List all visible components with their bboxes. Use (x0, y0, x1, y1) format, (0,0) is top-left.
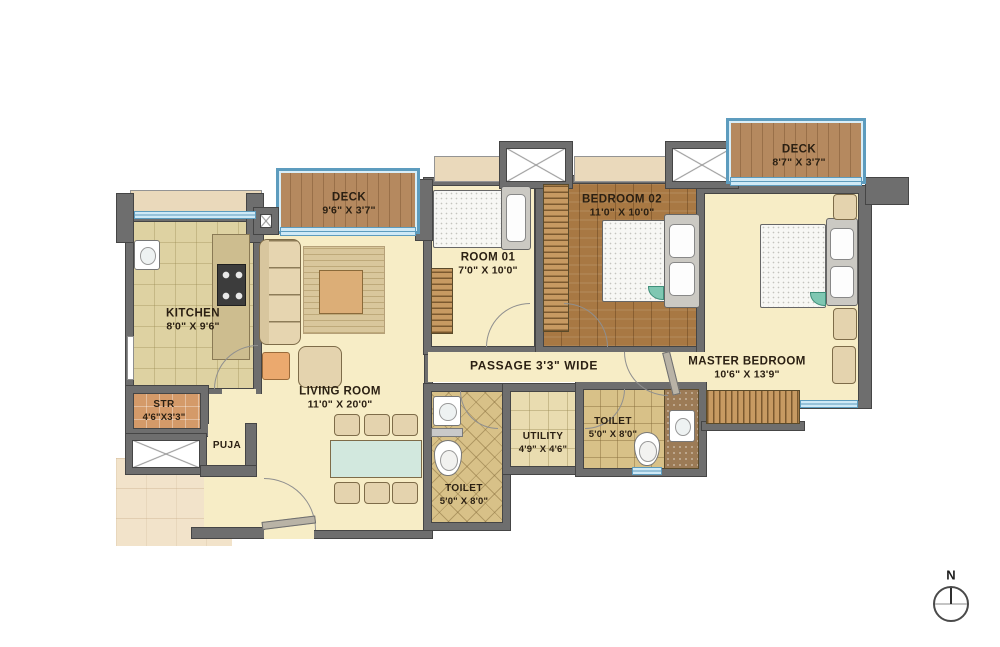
bed-room01 (433, 190, 503, 248)
floor-plan: KITCHEN8'0" X 9'6" DECK9'6" X 3'7" ROOM … (0, 0, 1000, 647)
dining-chair (392, 414, 418, 436)
sliding-door-deck-left (280, 227, 416, 236)
center-table (319, 270, 363, 314)
wall-stub-right (866, 178, 908, 204)
wc-bowl (440, 450, 459, 472)
armchair (298, 346, 342, 388)
nightstand (833, 194, 857, 220)
basin-bowl (675, 418, 691, 437)
dresser (832, 346, 856, 384)
wardrobe-master (706, 390, 800, 424)
nightstand (833, 308, 857, 340)
puja-wall-bottom (201, 466, 256, 476)
dining-table (330, 440, 422, 478)
compass-needle (950, 588, 952, 604)
duct-shaft-1 (500, 142, 572, 188)
duct-shaft-small (254, 208, 278, 234)
ledge-bedroom02 (574, 156, 668, 182)
washbasin (433, 396, 461, 426)
entry-opening (264, 530, 314, 539)
room-label-living: LIVING ROOM11'0" X 20'0" (299, 384, 381, 412)
pillow (669, 224, 695, 258)
cooktop-icon (217, 264, 246, 306)
kitchen-sink (134, 240, 160, 270)
sink-bowl (140, 247, 156, 265)
window-kitchen-top (134, 211, 256, 219)
room-label-puja: PUJA (213, 440, 241, 453)
window-master-bottom (800, 400, 858, 408)
column-kitchen-left (117, 194, 133, 242)
sofa (259, 239, 301, 345)
wardrobe-room01 (431, 268, 453, 334)
pillow (830, 266, 854, 298)
room-label-master-bedroom: MASTER BEDROOM10'6" X 13'9" (688, 354, 805, 382)
basin-bowl (439, 403, 457, 421)
compass-icon: N (930, 566, 974, 628)
dining-chair (334, 414, 360, 436)
window-kitchen-left (127, 336, 134, 380)
kitchen-door-opening (222, 389, 256, 397)
washbasin (669, 410, 695, 442)
ledge-room01 (434, 156, 504, 182)
wc-bowl (639, 441, 656, 462)
duct-shaft-str (126, 434, 206, 474)
room-label-utility: UTILITY4'9" X 4'6" (519, 431, 567, 455)
dining-chair (392, 482, 418, 504)
room-label-toilet-common: TOILET5'0" X 8'0" (440, 483, 488, 507)
room-label-room01: ROOM 017'0" X 10'0" (458, 250, 517, 278)
entry-wall (192, 528, 264, 538)
pillow (669, 262, 695, 296)
pillow (506, 194, 526, 242)
room-label-deck-right: DECK8'7" X 3'7" (772, 142, 825, 170)
sliding-door-deck-right (730, 177, 862, 186)
toilet-shelf (431, 428, 463, 437)
pillow (830, 228, 854, 260)
ottoman (262, 352, 290, 380)
room-utility (503, 384, 583, 474)
room-label-bedroom02: BEDROOM 0211'0" X 10'0" (582, 192, 662, 220)
dining-chair (364, 414, 390, 436)
room-label-deck-left: DECK9'6" X 3'7" (322, 190, 375, 218)
room-label-str: STR4'6"X3'3" (143, 399, 186, 423)
dining-chair (334, 482, 360, 504)
room-label-kitchen: KITCHEN8'0" X 9'6" (166, 306, 220, 334)
compass-north-label: N (946, 568, 955, 583)
room-label-passage: PASSAGE 3'3" WIDE (470, 359, 598, 374)
room-label-toilet-master: TOILET5'0" X 8'0" (589, 416, 637, 440)
dining-chair (364, 482, 390, 504)
window-toilet-master (632, 467, 662, 475)
